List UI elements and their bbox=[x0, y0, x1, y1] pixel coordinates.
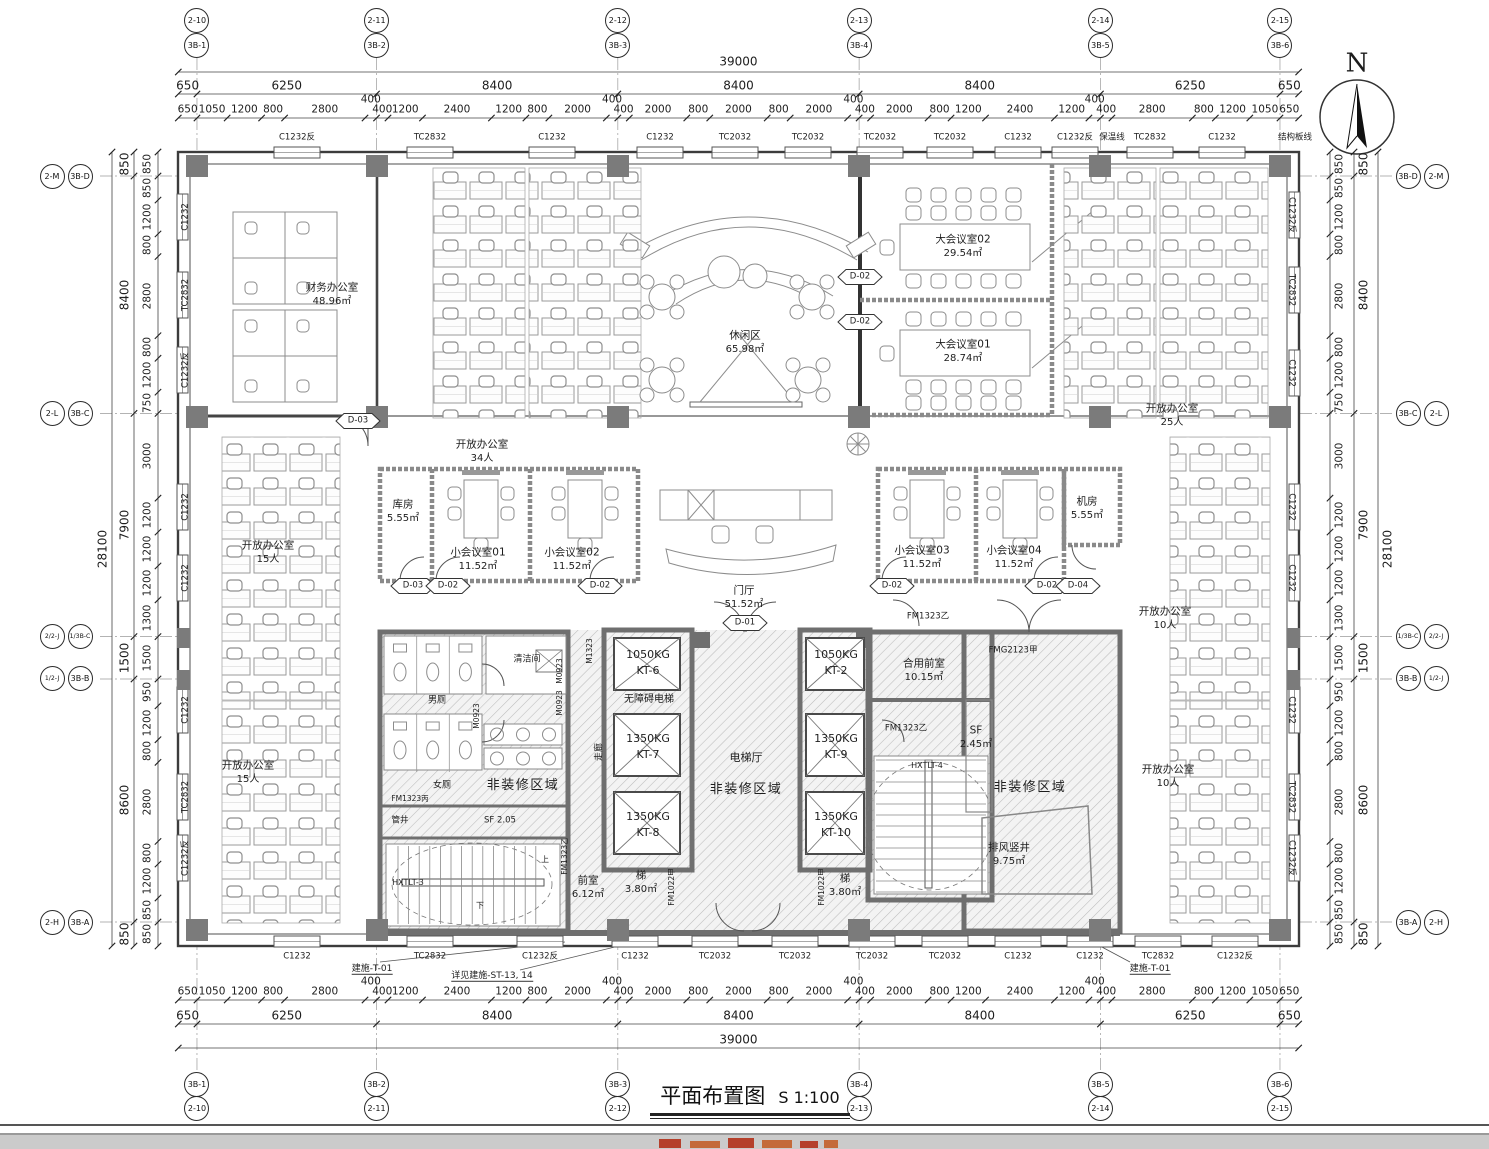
plan-label: M0923 bbox=[556, 658, 564, 684]
dimension-label: 1500 bbox=[119, 643, 132, 674]
window-tag: TC2832 bbox=[182, 781, 191, 813]
dimension-label: 1200 bbox=[495, 104, 522, 115]
dimension-label: 650 bbox=[178, 986, 198, 997]
dimension-label: 3000 bbox=[1334, 442, 1345, 469]
dimension-label: 1200 bbox=[142, 709, 153, 736]
grid-bubble-2-14: 2-14 bbox=[1088, 1096, 1113, 1121]
window-tag: C1232 bbox=[621, 953, 649, 962]
door-tag: D-02 bbox=[850, 273, 870, 282]
floor-plan-sheet: 平面布置图 S 1:100 N 650105012008002800400400… bbox=[0, 0, 1489, 1149]
dimension-label: 800 bbox=[769, 986, 789, 997]
plan-drawing bbox=[0, 0, 1489, 1149]
elevator-load: 1050KG bbox=[814, 649, 858, 661]
room-area: 3.80㎡ bbox=[625, 885, 657, 896]
window-tag: TC2832 bbox=[414, 134, 446, 143]
window-tag: C1232 bbox=[1287, 493, 1296, 521]
plan-label: FMG2123甲 bbox=[989, 647, 1038, 656]
plan-label: 非装修区域 bbox=[487, 779, 560, 793]
grid-bubble-3B-C: 3B-C bbox=[1396, 401, 1421, 426]
window-tag: C1232 bbox=[182, 203, 191, 231]
window-tag: C1232 bbox=[283, 953, 311, 962]
dimension-label: 750 bbox=[1334, 393, 1345, 413]
room-area: 11.52㎡ bbox=[995, 560, 1034, 571]
room-name: 小会议室01 bbox=[450, 547, 505, 558]
room-area: 15人 bbox=[257, 555, 280, 566]
dimension-label: 1050 bbox=[1252, 104, 1279, 115]
dimension-label: 400 bbox=[372, 104, 392, 115]
plan-label: FM1022甲 bbox=[818, 868, 826, 905]
grid-bubble-3B-5: 3B-5 bbox=[1088, 1072, 1113, 1097]
room-area: 10人 bbox=[1157, 779, 1180, 790]
dimension-label: 1200 bbox=[955, 104, 982, 115]
plan-label: FM1323乙 bbox=[885, 725, 927, 734]
grid-bubble-3B-B: 3B-B bbox=[68, 666, 93, 691]
dimension-label: 2800 bbox=[1139, 104, 1166, 115]
plan-label: FM1022甲 bbox=[668, 868, 676, 905]
elevator-load: 1350KG bbox=[814, 733, 858, 745]
dimension-label: 800 bbox=[1194, 104, 1214, 115]
dimension-label: 1200 bbox=[1058, 986, 1085, 997]
dimension-label: 2800 bbox=[1139, 986, 1166, 997]
room-name: SF bbox=[970, 725, 983, 736]
dimension-label: 2000 bbox=[806, 986, 833, 997]
dimension-label: 1200 bbox=[1334, 536, 1345, 563]
room-name: 开放办公室 bbox=[1139, 606, 1192, 617]
dimension-label: 800 bbox=[1334, 843, 1345, 863]
dimension-label: 39000 bbox=[719, 1034, 757, 1047]
room-area: 48.96㎡ bbox=[313, 297, 352, 308]
window-tag: C1232 bbox=[1004, 134, 1032, 143]
window-tag: TC2032 bbox=[779, 953, 811, 962]
window-tag: C1232 bbox=[182, 564, 191, 592]
dimension-label: 800 bbox=[142, 843, 153, 863]
dimension-label: 400 bbox=[855, 986, 875, 997]
door-tag: D-03 bbox=[348, 417, 368, 426]
grid-bubble-2-13: 2-13 bbox=[847, 1096, 872, 1121]
title-underline-2 bbox=[650, 1118, 850, 1119]
dimension-label: 1200 bbox=[1334, 868, 1345, 895]
grid-bubble-2-11: 2-11 bbox=[364, 1096, 389, 1121]
plan-label: 下 bbox=[476, 902, 484, 910]
window-tag: TC2032 bbox=[792, 134, 824, 143]
window-tag: 结构板线 bbox=[1278, 134, 1312, 143]
dimension-label: 2000 bbox=[806, 104, 833, 115]
dimension-label: 2400 bbox=[1007, 104, 1034, 115]
plan-label: 无障碍电梯 bbox=[624, 695, 674, 706]
room-area: 11.52㎡ bbox=[903, 560, 942, 571]
grid-bubble-3B-4: 3B-4 bbox=[847, 33, 872, 58]
door-tag: D-02 bbox=[882, 582, 902, 591]
dimension-label: 1300 bbox=[142, 605, 153, 632]
door-tag: D-02 bbox=[590, 582, 610, 591]
room-area: 2.45㎡ bbox=[960, 740, 992, 751]
elevator-load: 1350KG bbox=[814, 811, 858, 823]
annotation: 建施-T-01 bbox=[352, 965, 393, 975]
room-name: 梯 bbox=[636, 870, 647, 881]
window-tag: C1232 bbox=[1287, 359, 1296, 387]
dimension-label: 1200 bbox=[1219, 104, 1246, 115]
grid-bubble-2-M: 2-M bbox=[40, 164, 65, 189]
dimension-label: 2000 bbox=[645, 986, 672, 997]
dimension-label: 2000 bbox=[725, 104, 752, 115]
grid-bubble-3B-6: 3B-6 bbox=[1267, 33, 1292, 58]
dimension-label: 400 bbox=[855, 104, 875, 115]
window-tag: C1232 bbox=[1287, 696, 1296, 724]
grid-bubble-1/3B-C: 1/3B-C bbox=[1396, 624, 1421, 649]
dimension-label: 2000 bbox=[564, 986, 591, 997]
dimension-label: 1500 bbox=[142, 644, 153, 671]
window-tag: TC2032 bbox=[699, 953, 731, 962]
window-tag: C1232反 bbox=[279, 134, 315, 143]
plan-label: M0923 bbox=[556, 690, 564, 716]
dimension-label: 2000 bbox=[645, 104, 672, 115]
grid-bubble-3B-1: 3B-1 bbox=[184, 1072, 209, 1097]
dimension-label: 850 bbox=[1358, 923, 1371, 946]
dimension-label: 800 bbox=[1194, 986, 1214, 997]
dimension-label: 850 bbox=[1358, 153, 1371, 176]
room-area: 29.54㎡ bbox=[944, 249, 983, 260]
dimension-label: 800 bbox=[142, 741, 153, 761]
door-tag: D-02 bbox=[438, 582, 458, 591]
plan-label: FM1323乙 bbox=[907, 613, 949, 622]
plan-label: SF 2.05 bbox=[484, 817, 516, 826]
drawing-title: 平面布置图 bbox=[660, 1084, 765, 1108]
plan-label: 清洁间 bbox=[513, 655, 540, 664]
dimension-label: 800 bbox=[142, 235, 153, 255]
dimension-label: 800 bbox=[688, 986, 708, 997]
plan-label: M1323 bbox=[586, 638, 594, 664]
grid-bubble-2/2-J: 2/2-J bbox=[1424, 624, 1449, 649]
window-tag: C1232 bbox=[1076, 953, 1104, 962]
title-underline bbox=[650, 1113, 850, 1116]
dimension-label: 800 bbox=[263, 104, 283, 115]
dimension-label: 2400 bbox=[444, 986, 471, 997]
dimension-label: 800 bbox=[1334, 337, 1345, 357]
grid-bubble-3B-2: 3B-2 bbox=[364, 1072, 389, 1097]
grid-bubble-3B-3: 3B-3 bbox=[605, 1072, 630, 1097]
room-area: 51.52㎡ bbox=[725, 600, 764, 611]
dimension-label: 28100 bbox=[97, 530, 110, 568]
grid-bubble-2-L: 2-L bbox=[40, 401, 65, 426]
dimension-label: 1200 bbox=[231, 104, 258, 115]
dimension-label: 850 bbox=[1334, 178, 1345, 198]
dimension-label: 850 bbox=[142, 178, 153, 198]
dimension-label: 2800 bbox=[142, 283, 153, 310]
elevator-id: KT-8 bbox=[636, 827, 659, 839]
room-area: 65.98㎡ bbox=[726, 345, 765, 356]
room-area: 25人 bbox=[1161, 418, 1184, 429]
dimension-label: 800 bbox=[930, 986, 950, 997]
dimension-label: 800 bbox=[930, 104, 950, 115]
dimension-label: 6250 bbox=[1175, 80, 1206, 93]
dimension-label: 850 bbox=[142, 900, 153, 920]
dimension-label: 850 bbox=[1334, 924, 1345, 944]
room-name: 开放办公室 bbox=[456, 439, 509, 450]
dimension-label: 750 bbox=[142, 393, 153, 413]
dimension-label: 850 bbox=[1334, 154, 1345, 174]
window-tag: TC2032 bbox=[864, 134, 896, 143]
window-tag: TC2832 bbox=[182, 279, 191, 311]
drawing-title-block: 平面布置图 S 1:100 bbox=[650, 1080, 850, 1119]
dimension-label: 8400 bbox=[482, 1010, 513, 1023]
grid-bubble-2-12: 2-12 bbox=[605, 1096, 630, 1121]
dimension-label: 8400 bbox=[723, 1010, 754, 1023]
dimension-label: 650 bbox=[1278, 1010, 1301, 1023]
dimension-label: 1200 bbox=[142, 362, 153, 389]
dimension-label: 800 bbox=[769, 104, 789, 115]
dimension-label: 1200 bbox=[142, 570, 153, 597]
dimension-label: 2400 bbox=[1007, 986, 1034, 997]
door-tag: D-02 bbox=[850, 318, 870, 327]
dimension-label: 2800 bbox=[311, 986, 338, 997]
window-tag: C1232反 bbox=[182, 352, 191, 388]
dimension-label: 1200 bbox=[142, 868, 153, 895]
grid-bubble-3B-2: 3B-2 bbox=[364, 33, 389, 58]
room-name: 小会议室02 bbox=[544, 547, 599, 558]
dimension-label: 7900 bbox=[119, 510, 132, 541]
grid-bubble-3B-D: 3B-D bbox=[68, 164, 93, 189]
window-tag: TC2832 bbox=[1142, 953, 1174, 962]
grid-bubble-2-15: 2-15 bbox=[1267, 8, 1292, 33]
dimension-label: 650 bbox=[176, 1010, 199, 1023]
plan-label: HXTLT-4 bbox=[911, 762, 943, 770]
dimension-label: 650 bbox=[1279, 986, 1299, 997]
dimension-label: 7900 bbox=[1358, 510, 1371, 541]
elevator-id: KT-2 bbox=[824, 665, 847, 677]
dimension-label: 8400 bbox=[119, 279, 132, 310]
window-tag: C1232反 bbox=[182, 840, 191, 876]
dimension-label: 1050 bbox=[199, 104, 226, 115]
grid-bubble-1/2-J: 1/2-J bbox=[40, 666, 65, 691]
dimension-label: 850 bbox=[1334, 900, 1345, 920]
grid-bubble-3B-C: 3B-C bbox=[68, 401, 93, 426]
window-tag: TC2832 bbox=[1134, 134, 1166, 143]
dimension-label: 1500 bbox=[1334, 644, 1345, 671]
window-tag: C1232反 bbox=[1287, 840, 1296, 876]
elevator-id: KT-7 bbox=[636, 749, 659, 761]
dimension-label: 8600 bbox=[119, 785, 132, 816]
grid-bubble-3B-4: 3B-4 bbox=[847, 1072, 872, 1097]
room-name: 大会议室02 bbox=[935, 234, 990, 245]
window-tag: C1232 bbox=[1004, 953, 1032, 962]
dimension-label: 950 bbox=[1334, 682, 1345, 702]
window-tag: C1232 bbox=[182, 493, 191, 521]
grid-bubble-3B-5: 3B-5 bbox=[1088, 33, 1113, 58]
window-tag: TC2032 bbox=[856, 953, 888, 962]
room-name: 小会议室03 bbox=[894, 545, 949, 556]
plan-label: 女厕 bbox=[433, 781, 451, 790]
grid-bubble-2-13: 2-13 bbox=[847, 8, 872, 33]
dimension-label: 1200 bbox=[1219, 986, 1246, 997]
dimension-label: 650 bbox=[1279, 104, 1299, 115]
grid-bubble-2/2-J: 2/2-J bbox=[40, 624, 65, 649]
window-tag: 保温线 bbox=[1099, 134, 1125, 143]
dimension-label: 8400 bbox=[723, 80, 754, 93]
elevator-load: 1050KG bbox=[626, 649, 670, 661]
elevator-load: 1350KG bbox=[626, 811, 670, 823]
room-name: 休闲区 bbox=[729, 330, 761, 341]
elevator-id: KT-9 bbox=[824, 749, 847, 761]
room-area: 6.12㎡ bbox=[572, 890, 604, 901]
annotation: 详见建施-ST-13, 14 bbox=[451, 972, 533, 982]
room-name: 开放办公室 bbox=[222, 760, 275, 771]
dimension-label: 2000 bbox=[886, 104, 913, 115]
elevator-id: KT-10 bbox=[821, 827, 851, 839]
dimension-label: 1200 bbox=[142, 536, 153, 563]
room-area: 11.52㎡ bbox=[553, 562, 592, 573]
window-tag: C1232 bbox=[646, 134, 674, 143]
dimension-label: 1200 bbox=[392, 104, 419, 115]
elevator-load: 1350KG bbox=[626, 733, 670, 745]
window-tag: C1232 bbox=[538, 134, 566, 143]
drawing-scale: S 1:100 bbox=[778, 1088, 839, 1107]
north-label: N bbox=[1346, 50, 1369, 77]
dimension-label: 1200 bbox=[1334, 502, 1345, 529]
dimension-label: 400 bbox=[614, 104, 634, 115]
grid-bubble-1/2-J: 1/2-J bbox=[1424, 666, 1449, 691]
dimension-label: 8400 bbox=[1358, 279, 1371, 310]
room-area: 10人 bbox=[1154, 621, 1177, 632]
window-tag: TC2832 bbox=[414, 953, 446, 962]
dimension-label: 6250 bbox=[271, 80, 302, 93]
dimension-label: 800 bbox=[527, 104, 547, 115]
dimension-label: 2000 bbox=[564, 104, 591, 115]
window-tag: C1232反 bbox=[1217, 953, 1253, 962]
plan-label: 非装修区域 bbox=[994, 781, 1067, 795]
room-name: 机房 bbox=[1077, 496, 1098, 507]
dimension-label: 1200 bbox=[955, 986, 982, 997]
room-name: 小会议室04 bbox=[986, 545, 1041, 556]
dimension-label: 1500 bbox=[1358, 643, 1371, 674]
room-name: 门厅 bbox=[734, 585, 755, 596]
window-tag: C1232反 bbox=[1057, 134, 1093, 143]
grid-bubble-2-14: 2-14 bbox=[1088, 8, 1113, 33]
dimension-label: 2800 bbox=[1334, 283, 1345, 310]
dimension-label: 39000 bbox=[719, 56, 757, 69]
window-tag: C1232反 bbox=[1287, 197, 1296, 233]
window-tag: C1232 bbox=[1287, 564, 1296, 592]
window-tag: TC2032 bbox=[719, 134, 751, 143]
dimension-label: 650 bbox=[178, 104, 198, 115]
dimension-label: 8600 bbox=[1358, 785, 1371, 816]
plan-label: FM1323丙 bbox=[391, 795, 428, 803]
dimension-label: 2000 bbox=[725, 986, 752, 997]
dimension-label: 1200 bbox=[1334, 570, 1345, 597]
dimension-label: 1200 bbox=[1334, 362, 1345, 389]
room-area: 11.52㎡ bbox=[459, 562, 498, 573]
dimension-label: 800 bbox=[263, 986, 283, 997]
grid-bubble-3B-D: 3B-D bbox=[1396, 164, 1421, 189]
dimension-label: 800 bbox=[688, 104, 708, 115]
room-area: 5.55㎡ bbox=[387, 514, 419, 525]
room-name: 开放办公室 bbox=[1146, 403, 1199, 414]
dimension-label: 8400 bbox=[965, 1010, 996, 1023]
room-name: 合用前室 bbox=[903, 658, 945, 669]
grid-bubble-1/3B-C: 1/3B-C bbox=[68, 624, 93, 649]
room-name: 财务办公室 bbox=[306, 282, 359, 293]
room-area: 3.80㎡ bbox=[829, 888, 861, 899]
dimension-label: 850 bbox=[142, 154, 153, 174]
room-name: 大会议室01 bbox=[935, 339, 990, 350]
dimension-label: 1200 bbox=[231, 986, 258, 997]
dimension-label: 1200 bbox=[1058, 104, 1085, 115]
dimension-label: 2000 bbox=[886, 986, 913, 997]
plan-label: 管井 bbox=[391, 817, 408, 826]
dimension-label: 2800 bbox=[311, 104, 338, 115]
dimension-label: 1200 bbox=[1334, 204, 1345, 231]
dimension-label: 6250 bbox=[1175, 1010, 1206, 1023]
plan-label: 电梯厅 bbox=[730, 752, 763, 764]
dimension-label: 1200 bbox=[1334, 709, 1345, 736]
elevator-id: KT-6 bbox=[636, 665, 659, 677]
plan-label: HXTLT-3 bbox=[392, 879, 424, 887]
dimension-label: 950 bbox=[142, 682, 153, 702]
plan-label: FM1323乙 bbox=[561, 837, 569, 874]
window-tag: C1232 bbox=[1208, 134, 1236, 143]
dimension-label: 850 bbox=[142, 924, 153, 944]
room-name: 梯 bbox=[840, 873, 851, 884]
window-tag: TC2032 bbox=[934, 134, 966, 143]
room-name: 开放办公室 bbox=[1142, 764, 1195, 775]
dimension-label: 400 bbox=[1096, 104, 1116, 115]
grid-bubble-2-15: 2-15 bbox=[1267, 1096, 1292, 1121]
dimension-label: 3000 bbox=[142, 442, 153, 469]
grid-bubble-2-11: 2-11 bbox=[364, 8, 389, 33]
dimension-label: 850 bbox=[119, 923, 132, 946]
room-name: 排风竖井 bbox=[988, 842, 1030, 853]
dimension-label: 650 bbox=[176, 80, 199, 93]
dimension-label: 2800 bbox=[1334, 789, 1345, 816]
room-area: 15人 bbox=[237, 775, 260, 786]
dimension-label: 1200 bbox=[142, 204, 153, 231]
plan-label: 上 bbox=[541, 856, 549, 864]
dimension-label: 650 bbox=[1278, 80, 1301, 93]
grid-bubble-2-M: 2-M bbox=[1424, 164, 1449, 189]
window-tag: TC2832 bbox=[1287, 274, 1296, 306]
dimension-label: 800 bbox=[1334, 741, 1345, 761]
grid-bubble-3B-3: 3B-3 bbox=[605, 33, 630, 58]
grid-bubble-2-10: 2-10 bbox=[184, 1096, 209, 1121]
dimension-label: 8400 bbox=[965, 80, 996, 93]
door-tag: D-01 bbox=[735, 619, 755, 628]
door-tag: D-03 bbox=[403, 582, 423, 591]
dimension-label: 1050 bbox=[199, 986, 226, 997]
dimension-label: 850 bbox=[119, 153, 132, 176]
door-tag: D-04 bbox=[1068, 582, 1088, 591]
dimension-label: 28100 bbox=[1382, 530, 1395, 568]
grid-bubble-3B-B: 3B-B bbox=[1396, 666, 1421, 691]
plan-label: 走廊 bbox=[595, 743, 604, 761]
dimension-label: 1050 bbox=[1252, 986, 1279, 997]
dimension-label: 2400 bbox=[444, 104, 471, 115]
grid-bubble-3B-A: 3B-A bbox=[68, 910, 93, 935]
dimension-label: 6250 bbox=[271, 1010, 302, 1023]
room-area: 28.74㎡ bbox=[944, 354, 983, 365]
dimension-label: 2800 bbox=[142, 789, 153, 816]
dimension-label: 1200 bbox=[495, 986, 522, 997]
dimension-label: 8400 bbox=[482, 80, 513, 93]
plan-label: 男厕 bbox=[428, 696, 446, 705]
window-tag: C1232反 bbox=[522, 953, 558, 962]
room-name: 前室 bbox=[578, 875, 599, 886]
grid-bubble-3B-6: 3B-6 bbox=[1267, 1072, 1292, 1097]
dimension-label: 400 bbox=[614, 986, 634, 997]
grid-bubble-2-10: 2-10 bbox=[184, 8, 209, 33]
window-tag: TC2032 bbox=[929, 953, 961, 962]
window-tag: TC2832 bbox=[1287, 781, 1296, 813]
dimension-label: 1200 bbox=[142, 502, 153, 529]
dimension-label: 1300 bbox=[1334, 605, 1345, 632]
